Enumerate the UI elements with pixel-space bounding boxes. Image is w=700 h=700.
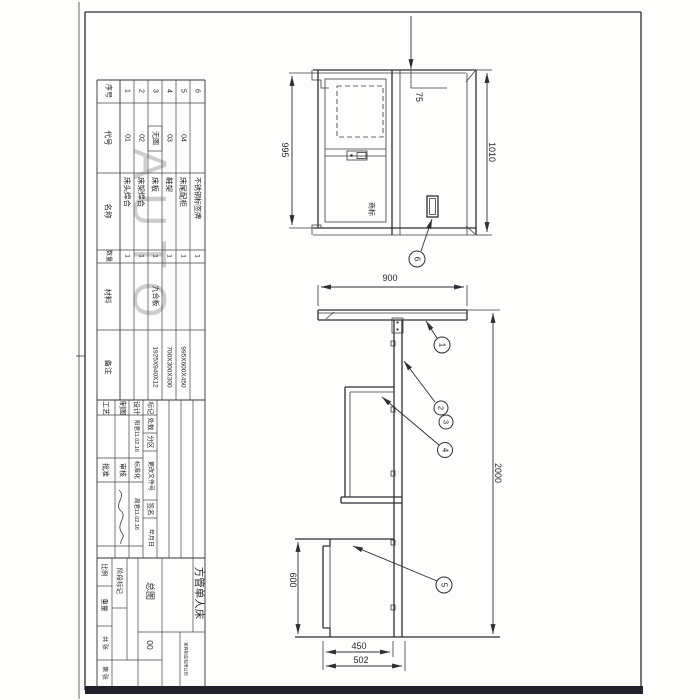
callout-6-number: 6 bbox=[413, 257, 422, 262]
latch-handle bbox=[357, 153, 366, 159]
row5-qty: 1 bbox=[180, 254, 187, 258]
row2-no: 2 bbox=[138, 89, 145, 93]
row5-code: 04 bbox=[180, 134, 187, 142]
dim-450-text: 450 bbox=[351, 641, 366, 651]
scan-watermark: AUTO bbox=[124, 149, 176, 332]
row6-qty: 1 bbox=[194, 254, 201, 258]
dim-502-text: 502 bbox=[353, 655, 368, 665]
revision-header-row: 标记 处数 分区 更改文件号 签名 年月日 bbox=[147, 402, 156, 548]
row4-code: 03 bbox=[166, 134, 173, 142]
check-label: 审核 bbox=[119, 463, 128, 477]
cabinet-bottom-notch bbox=[323, 628, 330, 637]
label-plate bbox=[427, 196, 438, 217]
title-block-right: 比例 重量 共 张 第 张 阶段标记 总图 00 方管单人床 家具制造有限公司 bbox=[101, 564, 207, 680]
process-row: 工艺 批准 bbox=[102, 401, 111, 477]
row4-no: 4 bbox=[166, 89, 173, 93]
row6-name: 不锈钢标签牌 bbox=[194, 177, 203, 219]
weight-label: 重量 bbox=[101, 599, 109, 613]
row3-material: 九合板 bbox=[152, 286, 161, 307]
row3-code: 无图 bbox=[152, 131, 160, 145]
doc-type: 总图 bbox=[145, 582, 156, 600]
dim-1010-text: 1010 bbox=[487, 142, 497, 162]
col-header-code: 代号 bbox=[104, 131, 114, 146]
dim-900-text: 900 bbox=[382, 273, 397, 283]
drawing-number: 00 bbox=[145, 640, 155, 650]
frame-bottom-band bbox=[85, 686, 643, 694]
drawing-canvas: AUTO 序号 代号 名称 bbox=[0, 0, 700, 700]
row6-no: 6 bbox=[194, 89, 201, 93]
design-row: 设计 阳君11.02.16 标准化 周君11.02.16 bbox=[133, 401, 142, 530]
title-block: 标记 处数 分区 更改文件号 签名 年月日 设计 阳君11.02.16 标准化 … bbox=[97, 400, 206, 687]
bed-platform bbox=[318, 310, 467, 320]
rev-count-label: 处数 bbox=[147, 418, 156, 432]
col-header-qty: 数量 bbox=[105, 250, 113, 262]
dim-995: 995 bbox=[280, 73, 318, 228]
standardization-label: 标准化 bbox=[133, 461, 141, 479]
callout-2-number: 2 bbox=[437, 406, 446, 410]
connector-dot bbox=[396, 321, 398, 323]
label-plate-inner bbox=[430, 199, 436, 215]
rev-date-label: 年月日 bbox=[147, 529, 155, 547]
row2-qty: 1 bbox=[138, 254, 145, 258]
total-sheets-label: 共 张 bbox=[101, 636, 109, 650]
callout-2-3: 2 3 bbox=[404, 361, 453, 429]
row2-code: 02 bbox=[138, 134, 145, 142]
draft-row: 制图 审核 bbox=[118, 401, 127, 544]
sheet-frame bbox=[76, 2, 643, 699]
design-signature: 阳君11.02.16 bbox=[133, 420, 141, 452]
row1-no: 1 bbox=[124, 89, 131, 93]
dim-1010: 1010 bbox=[476, 70, 497, 235]
col-header-remark: 备注 bbox=[104, 360, 114, 375]
rev-docno-label: 更改文件号 bbox=[147, 461, 155, 491]
col-header-name: 名称 bbox=[104, 204, 114, 219]
base-cabinet-outline bbox=[295, 539, 500, 637]
dim-995-text: 995 bbox=[280, 142, 290, 157]
callout-1: 1 bbox=[426, 321, 450, 353]
dim-900: 900 bbox=[318, 273, 467, 306]
col-header-no: 序号 bbox=[105, 84, 114, 98]
row3-no: 3 bbox=[152, 89, 159, 93]
row3-remark: 1925X940X12 bbox=[152, 346, 159, 388]
head-view: 商标 75 995 1010 6 bbox=[280, 16, 497, 267]
process-label: 工艺 bbox=[102, 401, 110, 415]
draft-label: 制图 bbox=[119, 401, 128, 415]
bottom-left-foot bbox=[312, 225, 321, 235]
row4-name: 鞋架 bbox=[165, 177, 175, 192]
callout-1-number: 1 bbox=[438, 343, 447, 348]
stage-mark-label: 阶段标记 bbox=[116, 568, 125, 595]
side-view: 900 bbox=[318, 273, 503, 637]
row5-remark: 995X600X450 bbox=[180, 346, 187, 388]
dim-2000: 2000 bbox=[467, 310, 503, 634]
dim-75: 75 bbox=[411, 16, 447, 102]
head-view-outline bbox=[312, 70, 476, 235]
scale-label: 比例 bbox=[101, 564, 110, 577]
row5-name: 床尾配柜 bbox=[179, 177, 189, 207]
shoe-rack-box bbox=[341, 387, 402, 503]
signature-scrawl bbox=[118, 490, 123, 544]
rev-mark-label: 标记 bbox=[147, 402, 156, 416]
rev-zone-label: 分区 bbox=[147, 436, 156, 450]
dim-75-text: 75 bbox=[414, 92, 424, 102]
row3-qty: 1 bbox=[152, 254, 159, 258]
latch-dot bbox=[350, 154, 353, 157]
dim-600-text: 600 bbox=[288, 572, 298, 587]
cabinet-door-panel bbox=[325, 79, 386, 222]
design-label: 设计 bbox=[133, 401, 142, 415]
scanned-drawing-sheet: AUTO 序号 代号 名称 bbox=[0, 0, 700, 700]
company-name: 家具制造有限公司 bbox=[183, 642, 190, 676]
row1-name: 床头焊合 bbox=[123, 177, 133, 207]
parts-row-5: 5 04 床尾配柜 1 995X600X450 bbox=[179, 89, 189, 388]
standardization-signature: 周君11.02.16 bbox=[133, 498, 140, 530]
parts-table-headers: 序号 代号 名称 数量 材料 备注 bbox=[104, 84, 114, 375]
col-header-material: 材料 bbox=[104, 289, 114, 304]
row4-qty: 1 bbox=[166, 254, 173, 258]
brand-mark-label: 商标 bbox=[368, 202, 377, 216]
connector-dot bbox=[396, 328, 398, 330]
row5-no: 5 bbox=[180, 89, 187, 93]
row2-name: 床架焊合 bbox=[137, 177, 147, 207]
callout-6: 6 bbox=[409, 219, 432, 267]
drawing-title: 方管单人床 bbox=[193, 567, 206, 620]
row1-qty: 1 bbox=[124, 254, 131, 258]
door-dashed-window bbox=[337, 86, 383, 137]
dim-2000-text: 2000 bbox=[493, 463, 503, 483]
callout-5-number: 5 bbox=[440, 583, 449, 588]
sheet-number-label: 第 张 bbox=[101, 666, 109, 680]
approve-label: 批准 bbox=[102, 463, 111, 477]
cabinet-top-notch bbox=[323, 539, 330, 546]
rev-sign-label: 签名 bbox=[147, 503, 156, 516]
bed-post bbox=[391, 318, 403, 637]
callout-4-number: 4 bbox=[441, 448, 450, 453]
row1-code: 01 bbox=[124, 134, 131, 142]
parts-row-6: 6 不锈钢标签牌 1 bbox=[194, 89, 203, 258]
dim-600: 600 bbox=[288, 542, 298, 634]
row4-remark: 700X300X300 bbox=[166, 346, 173, 388]
callout-3-number: 3 bbox=[442, 420, 451, 424]
row3-name: 床板 bbox=[151, 177, 161, 192]
